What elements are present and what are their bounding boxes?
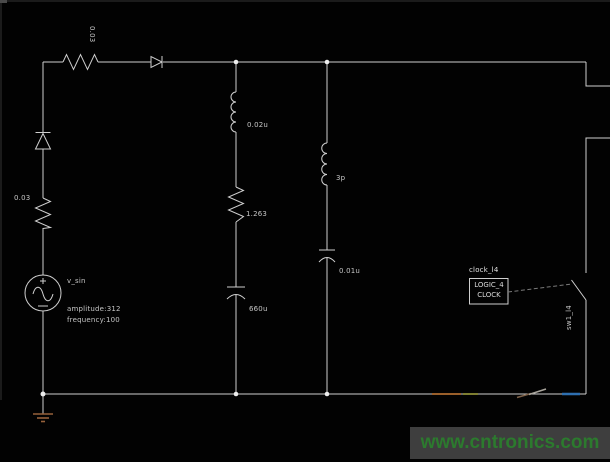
wire-right-return[interactable] — [586, 138, 610, 273]
inductor-symbol-mid[interactable] — [231, 92, 236, 132]
mid-capacitor-value-label: 660u — [249, 305, 268, 313]
sine-wave-icon — [33, 287, 53, 301]
clock-type-line1: LOGIC_4 — [470, 280, 508, 290]
left-resistor-value-label: 0.03 — [14, 194, 30, 202]
wire-top-right-jog[interactable] — [586, 62, 610, 86]
resistor-zigzag — [229, 187, 244, 222]
switch-ref-label: sw1_l4 — [565, 305, 573, 330]
diode-symbol-left[interactable] — [36, 133, 51, 150]
node-dot — [234, 392, 239, 397]
inductor-coils — [231, 92, 236, 132]
resistor-symbol-series[interactable] — [63, 55, 98, 70]
node-dot — [325, 392, 330, 397]
mid-resistor-value-label: 1.263 — [246, 210, 267, 218]
node-dot — [41, 392, 46, 397]
watermark-banner: www.cntronics.com — [410, 427, 610, 459]
schematic-drawing — [0, 0, 610, 462]
ground-symbol[interactable] — [33, 394, 53, 422]
switch-symbol[interactable] — [572, 280, 587, 300]
diode-triangle — [151, 57, 162, 68]
voltage-source-symbol[interactable] — [25, 275, 61, 311]
junction-dots — [41, 60, 330, 397]
source-amplitude-label: amplitude:312 — [67, 305, 121, 313]
resistor-symbol-mid[interactable] — [229, 187, 244, 222]
schematic-canvas: 0.03 0.03 v_sin amplitude:312 frequency:… — [0, 0, 610, 462]
net-highlight-marks — [432, 389, 580, 398]
mid-inductor-value-label: 0.02u — [247, 121, 268, 129]
switch-control-line — [508, 284, 572, 292]
plus-icon — [40, 278, 46, 284]
series-resistor-value-label: 0.03 — [88, 26, 96, 42]
diode-symbol-series[interactable] — [151, 56, 162, 68]
inductor-symbol-right[interactable] — [322, 143, 327, 185]
resistor-symbol-left[interactable] — [36, 198, 51, 229]
clock-type-line2: CLOCK — [470, 290, 508, 300]
resistor-zigzag — [36, 198, 51, 229]
right-capacitor-value-label: 0.01u — [339, 267, 360, 275]
node-dot — [234, 60, 239, 65]
resistor-zigzag — [63, 55, 98, 70]
wire-net[interactable] — [43, 62, 610, 394]
clock-box-text: LOGIC_4 CLOCK — [470, 280, 508, 300]
source-frequency-label: frequency:100 — [67, 316, 120, 324]
inductor-coils — [322, 143, 327, 185]
node-dot — [325, 60, 330, 65]
right-inductor-value-label: 3p — [336, 174, 345, 182]
diode-triangle — [36, 134, 51, 150]
clock-ref-label: clock_l4 — [469, 266, 498, 274]
watermark-text: www.cntronics.com — [421, 432, 600, 454]
switch-blade — [572, 280, 587, 300]
source-name-label: v_sin — [67, 277, 86, 285]
